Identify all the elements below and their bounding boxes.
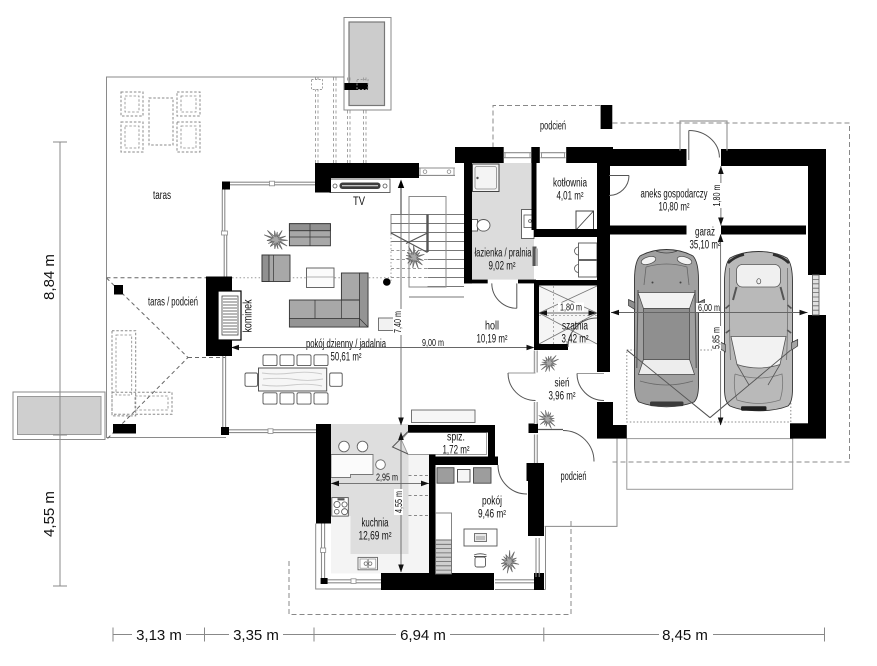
svg-text:4,01 m²: 4,01 m² — [557, 191, 584, 203]
svg-text:10,80 m²: 10,80 m² — [659, 202, 690, 214]
svg-text:szatnia: szatnia — [562, 321, 588, 333]
svg-text:9,46 m²: 9,46 m² — [478, 509, 506, 521]
svg-text:9,00 m: 9,00 m — [422, 338, 444, 349]
svg-text:10,19 m²: 10,19 m² — [477, 334, 508, 346]
svg-text:spiż.: spiż. — [447, 432, 465, 444]
svg-text:50,61 m²: 50,61 m² — [331, 352, 362, 364]
svg-text:2,95 m: 2,95 m — [376, 473, 398, 484]
svg-text:kominek: kominek — [243, 299, 255, 332]
svg-text:podcień: podcień — [540, 121, 566, 133]
svg-text:3,96 m²: 3,96 m² — [549, 391, 576, 403]
svg-text:1,72 m²: 1,72 m² — [443, 445, 470, 457]
svg-text:taras: taras — [153, 190, 171, 202]
svg-text:kuchnia: kuchnia — [362, 518, 389, 530]
svg-text:pokój dzienny / jadalnia: pokój dzienny / jadalnia — [306, 339, 386, 351]
svg-text:1,80 m: 1,80 m — [560, 303, 582, 314]
svg-text:TV: TV — [353, 196, 365, 208]
svg-text:4,55 m: 4,55 m — [41, 491, 58, 537]
svg-text:9,02 m²: 9,02 m² — [489, 261, 516, 273]
svg-text:podcień: podcień — [561, 471, 587, 483]
svg-text:3,13 m: 3,13 m — [136, 627, 182, 644]
svg-text:6,94 m: 6,94 m — [400, 627, 446, 644]
svg-text:1,80 m: 1,80 m — [712, 185, 723, 207]
svg-text:kotłownia: kotłownia — [553, 178, 587, 190]
svg-text:garaż: garaż — [695, 227, 715, 239]
svg-text:sień: sień — [555, 378, 570, 390]
svg-text:7,40 m: 7,40 m — [393, 311, 404, 333]
svg-text:8,84 m: 8,84 m — [41, 254, 58, 300]
svg-text:4,55 m: 4,55 m — [394, 491, 405, 513]
svg-text:taras / podcień: taras / podcień — [148, 297, 198, 309]
svg-text:8,45 m: 8,45 m — [662, 627, 708, 644]
svg-text:5,85 m: 5,85 m — [712, 327, 723, 349]
svg-text:6,00 m: 6,00 m — [698, 303, 720, 314]
svg-text:pokój: pokój — [482, 496, 502, 508]
svg-text:3,35 m: 3,35 m — [233, 627, 279, 644]
svg-text:łazienka / pralnia: łazienka / pralnia — [475, 248, 532, 260]
svg-text:12,69 m²: 12,69 m² — [359, 531, 392, 543]
svg-text:aneks gospodarczy: aneks gospodarczy — [641, 189, 708, 201]
svg-text:3,42 m²: 3,42 m² — [562, 334, 589, 346]
svg-text:35,10 m²: 35,10 m² — [690, 240, 721, 252]
svg-text:holl: holl — [485, 321, 499, 333]
